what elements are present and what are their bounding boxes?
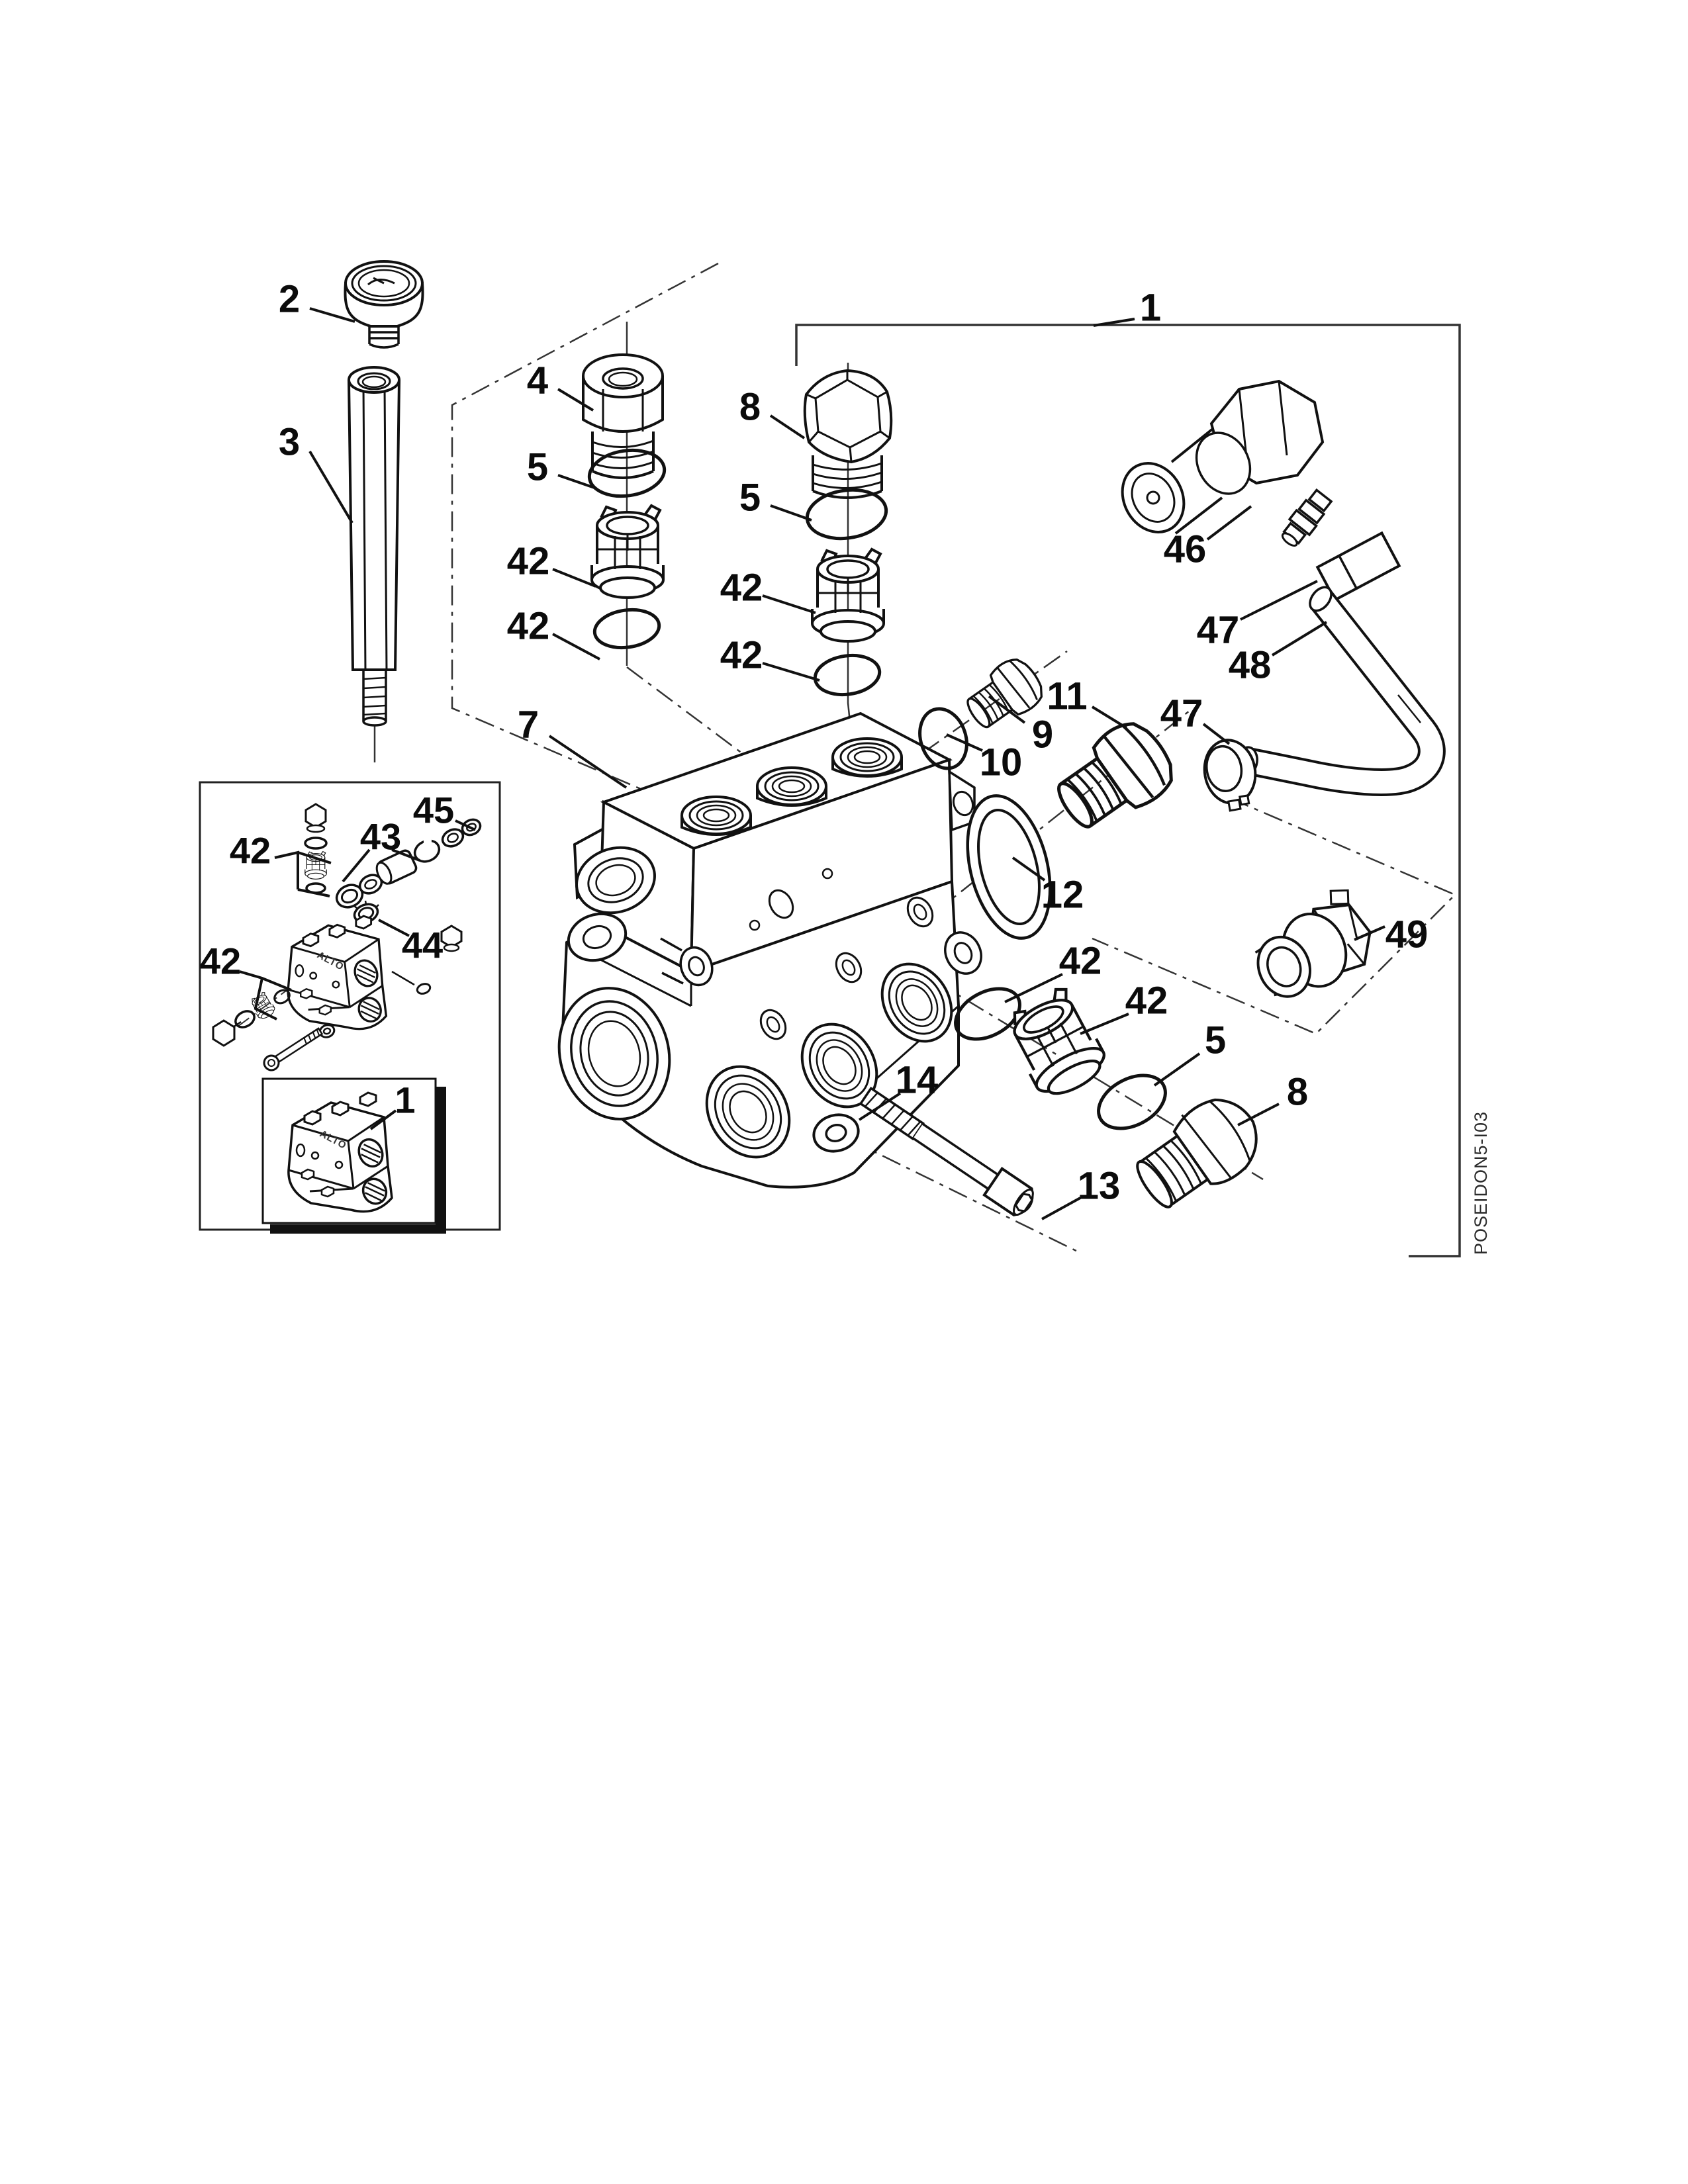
callout-13: 13: [1078, 1165, 1121, 1208]
part-pressure-gauge: [345, 261, 422, 347]
callout-5a: 5: [527, 446, 548, 489]
callout-42e: 42: [1059, 940, 1102, 983]
part-valve-42f: [1000, 983, 1112, 1104]
callout-43: 43: [360, 816, 401, 858]
callout-3: 3: [279, 421, 300, 464]
callout-4: 4: [527, 359, 548, 402]
part-plug-4: [583, 355, 663, 478]
manual-page: ALTO ALTO POSEIDON5-I03: [0, 0, 1688, 2184]
callout-42g: 42: [230, 830, 271, 872]
callout-12: 12: [1041, 874, 1084, 917]
callout-10: 10: [980, 741, 1023, 784]
callout-1-inset: 1: [395, 1079, 415, 1121]
callout-14: 14: [896, 1059, 939, 1102]
callout-42d: 42: [720, 634, 763, 677]
part-hex-tube: [349, 367, 399, 725]
callout-5c: 5: [1205, 1019, 1226, 1062]
callout-8b: 8: [1287, 1071, 1308, 1114]
callout-42a: 42: [507, 540, 550, 583]
exploded-parts-diagram: ALTO ALTO POSEIDON5-I03: [0, 0, 1688, 2184]
callout-7: 7: [518, 704, 539, 747]
callout-5b: 5: [739, 477, 761, 520]
callout-11: 11: [1047, 675, 1087, 718]
callout-1: 1: [1140, 287, 1161, 330]
callout-42c: 42: [720, 567, 763, 610]
callout-47b: 47: [1160, 692, 1203, 735]
callout-46: 46: [1164, 528, 1207, 571]
part-elbow-46: [1111, 381, 1334, 551]
part-manifold: [545, 713, 988, 1187]
callout-42f: 42: [1125, 979, 1168, 1023]
part-plug-8b: [1124, 1084, 1273, 1222]
callout-44: 44: [402, 925, 443, 966]
callout-2: 2: [279, 278, 300, 321]
drawing-code: POSEIDON5-I03: [1471, 1111, 1491, 1255]
callout-8a: 8: [739, 386, 761, 429]
part-plug-8a: [805, 371, 892, 498]
callout-48: 48: [1229, 644, 1272, 687]
callout-42h: 42: [200, 940, 241, 982]
callout-9: 9: [1032, 713, 1053, 756]
callout-42b: 42: [507, 605, 550, 648]
callout-45: 45: [413, 790, 454, 831]
callout-49: 49: [1385, 913, 1429, 956]
part-oring-5c: [1090, 1065, 1174, 1140]
